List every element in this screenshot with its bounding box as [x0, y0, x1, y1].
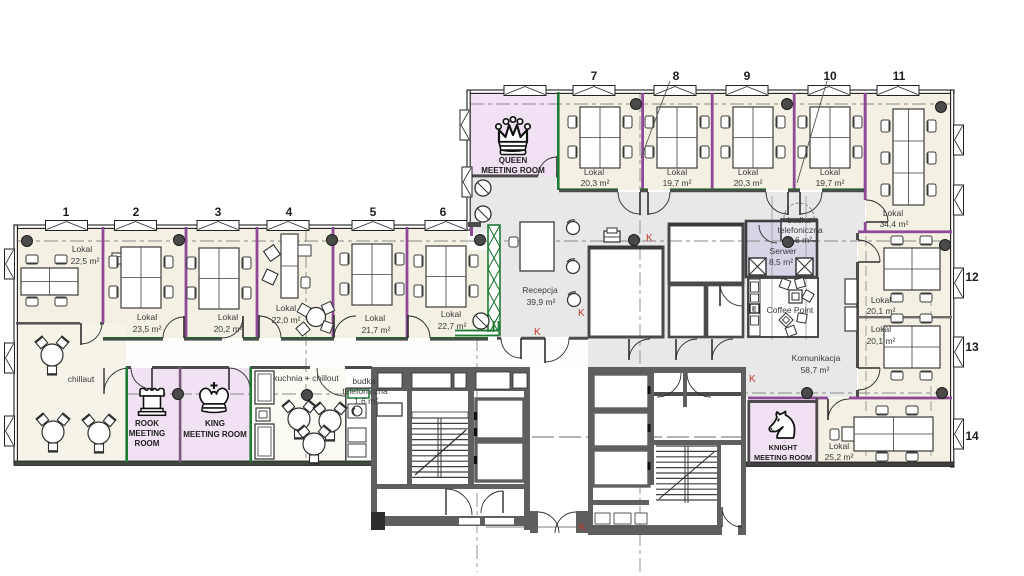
svg-text:KING: KING	[205, 419, 225, 428]
svg-text:58,7 m²: 58,7 m²	[801, 365, 830, 375]
svg-text:39,9 m²: 39,9 m²	[527, 297, 556, 307]
svg-text:Lokal: Lokal	[871, 295, 891, 305]
svg-text:Lokal: Lokal	[820, 167, 840, 177]
svg-text:1: 1	[63, 205, 70, 219]
svg-text:K: K	[749, 374, 756, 385]
svg-text:2: 2	[133, 205, 140, 219]
svg-text:20,3 m²: 20,3 m²	[581, 178, 610, 188]
svg-text:Lokal: Lokal	[883, 208, 903, 218]
svg-text:19,7 m²: 19,7 m²	[663, 178, 692, 188]
svg-text:Lokal: Lokal	[441, 309, 461, 319]
svg-text:8: 8	[673, 69, 680, 83]
svg-text:7: 7	[591, 69, 598, 83]
svg-text:5: 5	[370, 205, 377, 219]
svg-text:K: K	[578, 308, 585, 319]
svg-text:budka: budka	[352, 376, 375, 386]
svg-text:20,1 m²: 20,1 m²	[867, 336, 896, 346]
svg-text:kuchnia + chillout: kuchnia + chillout	[273, 373, 339, 383]
svg-text:20,1 m²: 20,1 m²	[867, 306, 896, 316]
svg-text:34,4 m²: 34,4 m²	[880, 219, 909, 229]
svg-text:22,0 m²: 22,0 m²	[272, 315, 301, 325]
svg-text:25,2 m²: 25,2 m²	[825, 452, 854, 462]
svg-text:4: 4	[286, 205, 293, 219]
svg-text:Lokal: Lokal	[738, 167, 758, 177]
svg-text:14: 14	[965, 429, 979, 443]
svg-text:Lokal: Lokal	[137, 312, 157, 322]
svg-text:K: K	[646, 233, 653, 244]
svg-text:Lokal: Lokal	[365, 313, 385, 323]
svg-text:20,3 m²: 20,3 m²	[734, 178, 763, 188]
svg-text:Lokal: Lokal	[584, 167, 604, 177]
svg-text:21,7 m²: 21,7 m²	[362, 325, 391, 335]
svg-text:MEETING ROOM: MEETING ROOM	[183, 430, 247, 439]
svg-text:13: 13	[965, 340, 979, 354]
svg-text:10: 10	[823, 69, 837, 83]
svg-text:22,7 m²: 22,7 m²	[438, 321, 467, 331]
svg-text:chillaut: chillaut	[68, 374, 95, 384]
svg-text:ROOM: ROOM	[135, 439, 160, 448]
svg-text:3: 3	[215, 205, 222, 219]
svg-text:K: K	[534, 327, 541, 338]
svg-text:11: 11	[893, 69, 906, 83]
svg-text:budka: budka	[787, 215, 810, 225]
svg-text:KNIGHT: KNIGHT	[769, 443, 798, 452]
svg-text:Lokal: Lokal	[276, 303, 296, 313]
svg-text:K: K	[579, 522, 586, 533]
svg-text:Serwer: Serwer	[770, 246, 797, 256]
svg-text:Lokal: Lokal	[218, 312, 238, 322]
svg-text:1,6 m²: 1,6 m²	[788, 235, 812, 245]
svg-text:Lokal: Lokal	[72, 244, 92, 254]
svg-text:Recepcja: Recepcja	[522, 285, 558, 295]
svg-text:9: 9	[744, 69, 751, 83]
svg-text:MEETING ROOM: MEETING ROOM	[754, 453, 812, 462]
svg-text:ROOK: ROOK	[135, 419, 159, 428]
svg-text:6: 6	[440, 205, 447, 219]
svg-text:1,6 m²: 1,6 m²	[354, 396, 378, 406]
svg-text:telefoniczna: telefoniczna	[342, 386, 388, 396]
svg-text:Lokal: Lokal	[871, 324, 891, 334]
svg-text:19,7 m²: 19,7 m²	[816, 178, 845, 188]
svg-text:20,2 m²: 20,2 m²	[214, 324, 243, 334]
svg-text:MEETING: MEETING	[129, 429, 165, 438]
svg-text:Lokal: Lokal	[829, 441, 849, 451]
svg-text:QUEEN: QUEEN	[499, 156, 528, 165]
svg-text:23,5 m²: 23,5 m²	[133, 324, 162, 334]
svg-text:Lokal: Lokal	[667, 167, 687, 177]
svg-text:12: 12	[965, 270, 979, 284]
svg-text:telefoniczna: telefoniczna	[777, 225, 823, 235]
svg-text:MEETING ROOM: MEETING ROOM	[481, 166, 545, 175]
svg-text:E: E	[752, 307, 757, 314]
svg-text:22,5 m²: 22,5 m²	[71, 256, 100, 266]
svg-text:Komunikacja: Komunikacja	[792, 353, 841, 363]
svg-text:Coffee Point: Coffee Point	[767, 305, 814, 315]
svg-text:8,5 m²: 8,5 m²	[769, 257, 793, 267]
